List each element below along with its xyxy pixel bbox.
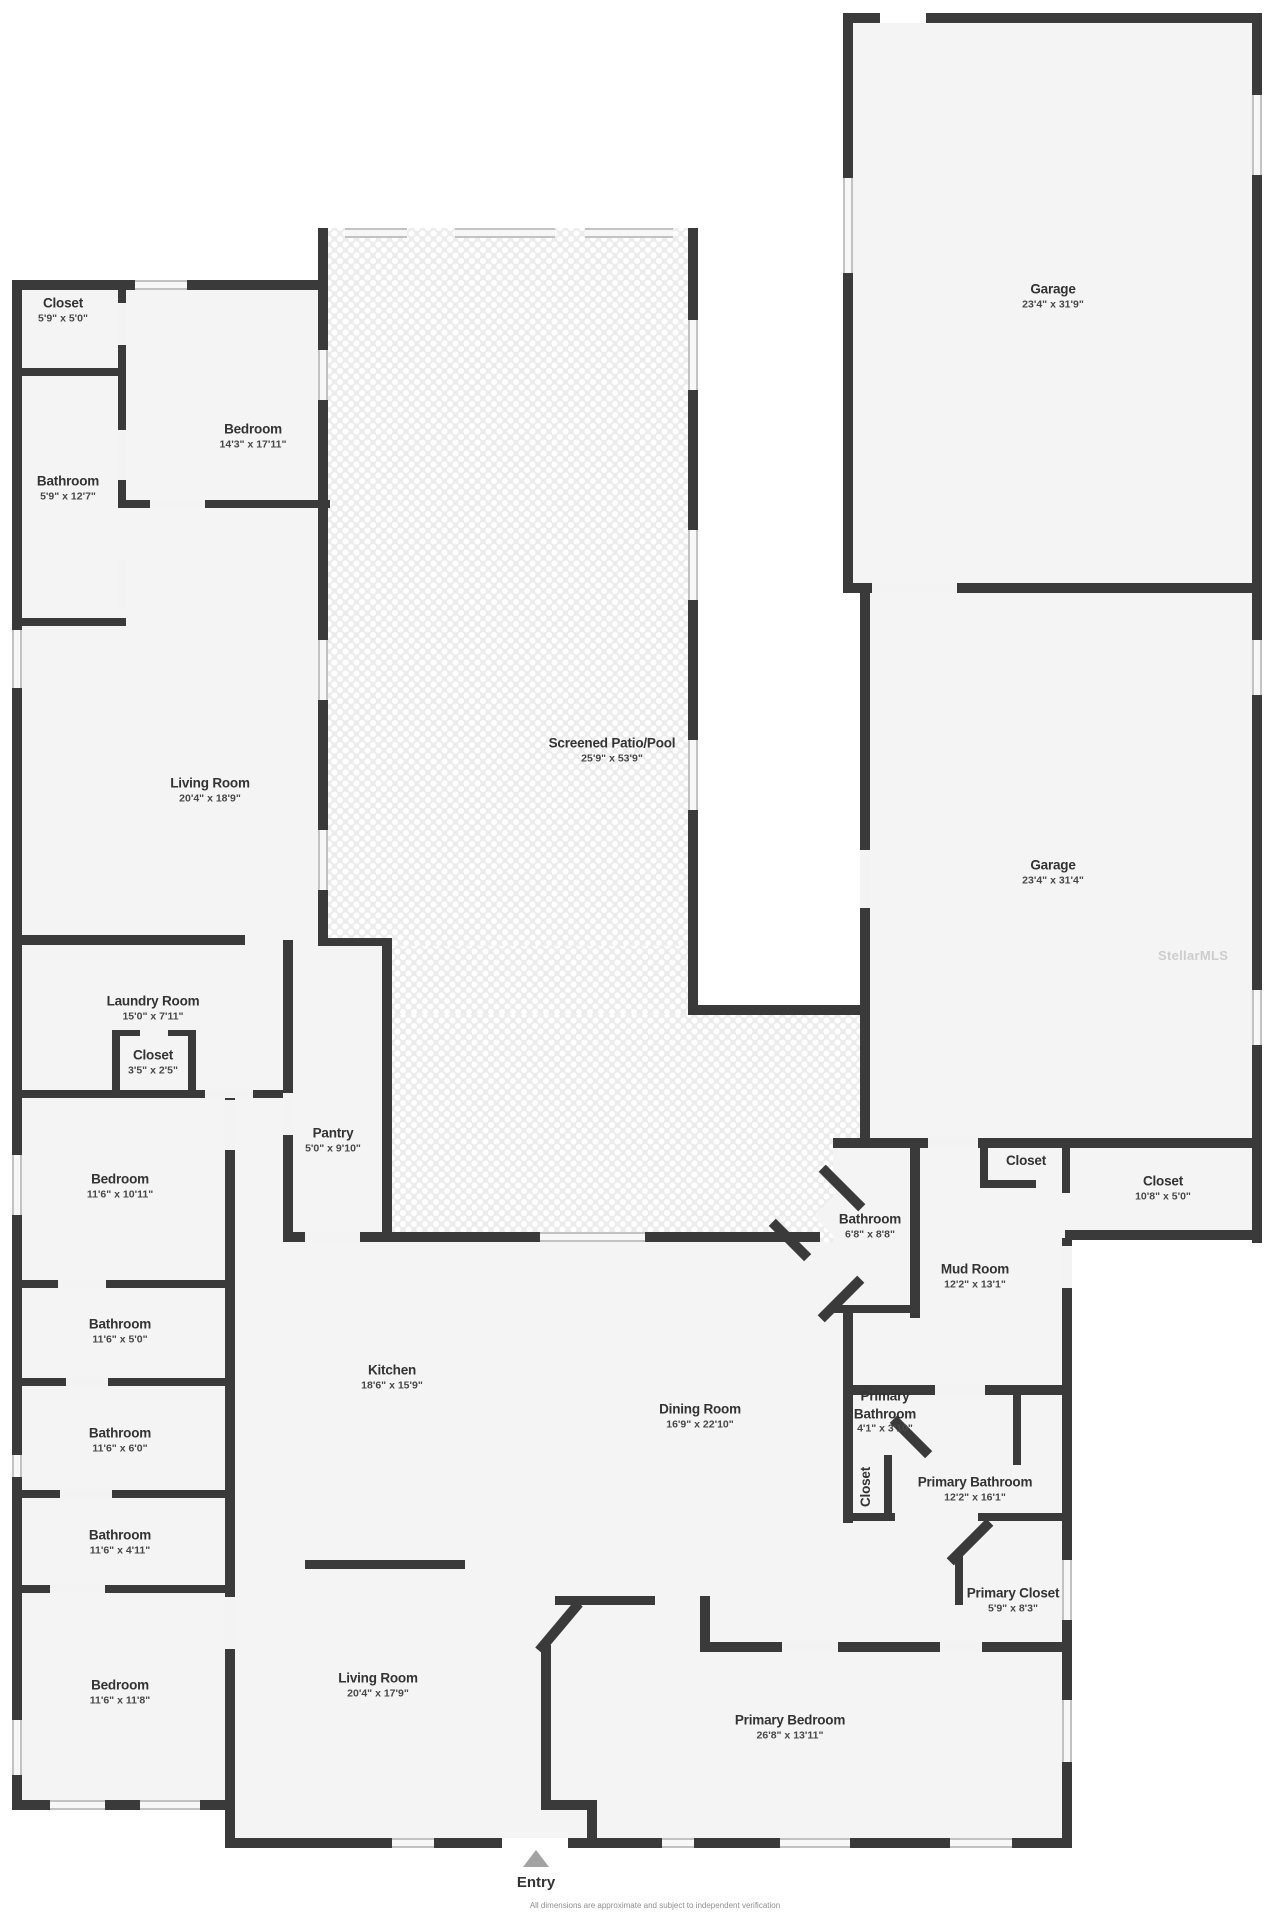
door-opening [880,13,926,23]
window [50,1800,105,1810]
room-name: Living Room [338,1669,418,1687]
room-dims: 4'1" x 3'10" [836,1423,934,1437]
room-label-mud-room: Mud Room 12'2" x 13'1" [941,1260,1009,1291]
wall-segment [1065,1230,1262,1240]
wall-segment [12,280,22,1810]
room-label-garage-top: Garage 23'4" x 31'9" [1022,280,1084,311]
window [843,178,853,273]
door-opening [502,1838,568,1848]
room-name: Bedroom [220,420,287,438]
room-label-garage-right: Garage 23'4" x 31'4" [1022,856,1084,887]
room-name: Closet [1006,1152,1046,1170]
room-dims: 5'0" x 9'10" [305,1142,361,1156]
room-label-closet-right: Closet 10'8" x 5'0" [1135,1172,1191,1203]
room-label-bathroom-top-left: Bathroom 5'9" x 12'7" [37,472,99,503]
wall-segment [843,1513,895,1521]
wall-segment [978,1513,1072,1521]
room-label-bathroom-4: Bathroom 11'6" x 6'0" [89,1424,151,1455]
wall-segment [12,1490,233,1498]
window [1062,1700,1072,1762]
wall-segment [225,1095,235,1805]
room-label-bathroom-3: Bathroom 11'6" x 5'0" [89,1315,151,1346]
room-label-closet-top-left: Closet 5'9" x 5'0" [38,294,88,325]
wall-segment [884,1455,892,1520]
wall-segment [318,938,392,946]
room-label-bathroom-center: Bathroom 6'8" x 8'8" [839,1210,901,1241]
window [12,1720,22,1775]
room-dims: 11'6" x 4'11" [89,1544,151,1558]
door-opening [935,1385,985,1395]
room-dims: 20'4" x 18'9" [170,792,250,806]
wall-segment [12,1585,233,1593]
wall-segment [688,1005,870,1015]
door-opening [118,303,126,345]
room-dims: 15'0" x 7'11" [107,1010,200,1024]
room-name: Bathroom [37,472,99,490]
room-label-laundry-closet: Closet 3'5" x 2'5" [128,1046,178,1077]
room-name: Closet [38,294,88,312]
room-label-kitchen: Kitchen 18'6" x 15'9" [361,1361,423,1392]
room-dims: 23'4" x 31'9" [1022,298,1084,312]
window [1252,95,1262,175]
room-dims: 11'6" x 6'0" [89,1442,151,1456]
room-name: Closet [128,1046,178,1064]
room-label-laundry-room: Laundry Room 15'0" x 7'11" [107,992,200,1023]
wall-segment [856,1138,1262,1148]
room-dims: 3'5" x 2'5" [128,1064,178,1078]
room-name: Primary Bathroom [836,1388,934,1423]
window [12,630,22,688]
watermark: StellarMLS [1158,948,1228,963]
window [540,1232,645,1242]
door-opening [305,1232,360,1242]
room-dims: 10'8" x 5'0" [1135,1190,1191,1204]
window [780,1838,850,1848]
window [318,640,328,700]
window [1062,1560,1072,1620]
room-label-living-room-lower: Living Room 20'4" x 17'9" [338,1669,418,1700]
door-opening [60,1490,112,1498]
room-name: Living Room [170,774,250,792]
wall-segment [112,1030,120,1090]
door-opening [118,560,126,608]
door-opening [872,583,957,593]
window [345,228,407,238]
room-label-screened-patio-pool: Screened Patio/Pool 25'9" x 53'9" [549,734,676,765]
window [662,1838,694,1848]
room-dims: 20'4" x 17'9" [338,1687,418,1701]
door-opening [205,1090,253,1098]
door-opening [58,1280,106,1288]
window [318,350,328,400]
disclaimer-text: All dimensions are approximate and subje… [530,1901,780,1910]
room-label-living-room-upper: Living Room 20'4" x 18'9" [170,774,250,805]
door-opening [940,1642,982,1652]
room-name: Kitchen [361,1361,423,1379]
room-label-bathroom-5: Bathroom 11'6" x 4'11" [89,1526,151,1557]
room-dims: 23'4" x 31'4" [1022,874,1084,888]
room-name: Garage [1022,856,1084,874]
window [1252,640,1262,695]
door-opening [860,850,870,908]
room-label-bedroom-3: Bedroom 11'6" x 11'8" [90,1676,151,1707]
room-name: Bathroom [89,1315,151,1333]
window [688,740,698,810]
room-dims: 26'8" x 13'11" [735,1729,845,1743]
wall-segment [1062,1138,1070,1193]
room-label-dining-room: Dining Room 16'9" x 22'10" [659,1400,741,1431]
window [135,280,187,290]
door-opening [928,1138,978,1148]
room-name: Primary Bedroom [735,1711,845,1729]
room-dims: 5'9" x 5'0" [38,312,88,326]
room-dims: 18'6" x 15'9" [361,1379,423,1393]
room-name: Dining Room [659,1400,741,1418]
room-label-bedroom-top-left: Bedroom 14'3" x 17'11" [220,420,287,451]
room-label-primary-bedroom: Primary Bedroom 26'8" x 13'11" [735,1711,845,1742]
window [392,1838,434,1848]
window [12,1155,22,1215]
wall-segment [12,935,245,945]
window [455,228,555,238]
door-opening [50,1585,105,1593]
door-opening [1062,1246,1072,1288]
window [1252,990,1262,1045]
patio-area [392,946,698,1015]
room-name: Bathroom [89,1424,151,1442]
room-dims: 11'6" x 10'11" [87,1188,153,1202]
entry-label: Entry [517,1874,555,1891]
wall-segment [168,1030,196,1036]
door-opening [66,1378,108,1386]
room-label-closet-vertical: Closet [857,1467,875,1507]
wall-segment [910,1138,920,1318]
wall-segment [12,618,126,626]
wall-segment [305,1560,465,1569]
wall-segment [1252,13,1262,1243]
window [688,320,698,390]
wall-segment [843,1310,853,1393]
window [688,530,698,600]
door-opening [150,500,205,508]
patio-area [392,1015,860,1242]
room-name: Bedroom [90,1676,151,1694]
wall-segment [700,1642,1072,1652]
wall-segment [587,1800,597,1846]
window [12,1455,22,1477]
floor-plan: Closet 5'9" x 5'0" Bathroom 5'9" x 12'7"… [0,0,1280,1918]
wall-segment [225,1838,1072,1848]
door-opening [283,1093,293,1135]
door-opening [782,1642,838,1652]
window [585,228,673,238]
door-opening [225,1100,235,1150]
room-dims: 12'2" x 13'1" [941,1278,1009,1292]
room-dims: 25'9" x 53'9" [549,752,676,766]
wall-segment [860,583,870,1013]
room-name: Primary Closet [964,1584,1062,1602]
door-opening [225,1597,235,1649]
entry-arrow-icon [523,1850,549,1867]
room-name: Mud Room [941,1260,1009,1278]
room-name: Laundry Room [107,992,200,1010]
room-name: Primary Bathroom [918,1473,1033,1491]
room-name: Closet [857,1467,875,1507]
room-label-primary-bathroom: Primary Bathroom 12'2" x 16'1" [918,1473,1033,1504]
room-name: Bedroom [87,1170,153,1188]
room-dims: 16'9" x 22'10" [659,1418,741,1432]
room-label-pantry: Pantry 5'0" x 9'10" [305,1124,361,1155]
wall-segment [382,946,392,1242]
room-name: Bathroom [89,1526,151,1544]
room-label-primary-bathroom-small: Primary Bathroom 4'1" x 3'10" [836,1388,934,1437]
window [318,830,328,890]
window [140,1800,200,1810]
wall-segment [12,1800,235,1810]
room-name: Pantry [305,1124,361,1142]
door-opening [118,430,126,480]
room-label-primary-closet: Primary Closet 5'9" x 8'3" [964,1584,1062,1615]
room-name: Garage [1022,280,1084,298]
wall-segment [860,1005,870,1145]
wall-segment [283,940,293,1242]
room-dims: 6'8" x 8'8" [839,1228,901,1242]
window [950,1838,1012,1848]
room-dims: 11'6" x 5'0" [89,1333,151,1347]
wall-segment [1013,1390,1021,1465]
wall-segment [843,13,853,588]
wall-segment [12,1280,233,1288]
room-dims: 5'9" x 8'3" [964,1602,1062,1616]
room-name: Bathroom [839,1210,901,1228]
room-dims: 14'3" x 17'11" [220,438,287,452]
wall-segment [188,1030,196,1090]
wall-segment [980,1180,1036,1188]
room-dims: 5'9" x 12'7" [37,490,99,504]
room-name: Closet [1135,1172,1191,1190]
wall-segment [541,1645,551,1808]
wall-segment [112,1030,140,1036]
patio-area [318,228,698,946]
room-label-bedroom-2: Bedroom 11'6" x 10'11" [87,1170,153,1201]
room-dims: 12'2" x 16'1" [918,1491,1033,1505]
wall-segment [12,368,126,376]
room-dims: 11'6" x 11'8" [90,1694,151,1708]
wall-segment [12,1378,233,1386]
wall-segment [555,1596,655,1605]
room-label-mud-closet: Closet [1006,1152,1046,1170]
room-name: Screened Patio/Pool [549,734,676,752]
